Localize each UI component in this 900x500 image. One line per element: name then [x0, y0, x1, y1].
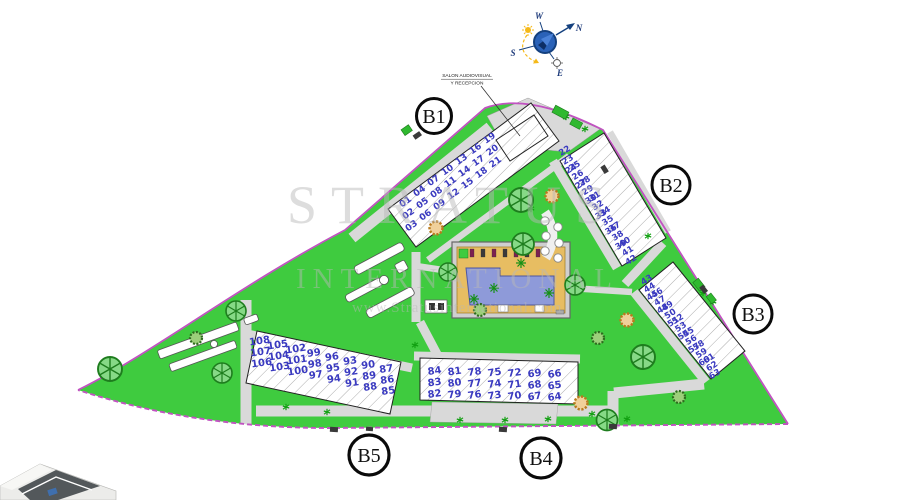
gate-marker	[330, 427, 338, 433]
bush-icon	[592, 332, 604, 344]
compass-label-west: W	[535, 11, 544, 21]
planter	[459, 249, 468, 258]
bush-icon	[430, 222, 443, 235]
utility-box	[425, 300, 447, 313]
unit-number: 64	[547, 391, 562, 404]
seating-pod	[542, 232, 550, 240]
compass-west-tick	[540, 22, 543, 31]
unit-number: 67	[527, 391, 542, 404]
unit-number: 70	[507, 390, 522, 403]
unit-number: 94	[326, 373, 341, 386]
bush-icon	[575, 397, 588, 410]
compass-rose-icon: W N S E	[510, 11, 582, 78]
utility-symbol	[438, 303, 444, 310]
block-label-b3: B3	[741, 304, 764, 326]
pool-gate	[556, 310, 564, 314]
palm-icon	[489, 283, 499, 293]
block-label-b4: B4	[529, 448, 552, 470]
tree-icon	[439, 263, 457, 281]
seating-pod	[541, 217, 549, 225]
gate-marker	[366, 427, 373, 431]
palm-icon	[544, 288, 554, 298]
tree-icon	[226, 301, 246, 321]
unit-number: 73	[487, 390, 502, 403]
seating-pod	[554, 254, 562, 262]
gate-marker	[609, 424, 617, 430]
block-label-b5: B5	[357, 445, 380, 467]
tree-icon	[565, 275, 585, 295]
site-plan: 0102030405060708091011121314151617181920…	[0, 0, 900, 500]
unit-number: 79	[447, 389, 462, 402]
unit-number: 82	[427, 388, 442, 401]
block-label-b1: B1	[422, 106, 445, 128]
seating-pod	[555, 239, 563, 247]
sunset-sun-icon	[554, 60, 561, 67]
unit-number: 85	[381, 385, 396, 398]
palm-icon	[516, 258, 526, 268]
bush-icon	[546, 190, 559, 203]
unit-number: 76	[467, 389, 482, 402]
bush-icon	[190, 332, 202, 344]
b4-service-apron	[430, 402, 558, 424]
bush-icon	[621, 314, 634, 327]
tree-icon	[98, 357, 122, 381]
garden-feature	[211, 341, 218, 348]
compass-east-tick	[549, 52, 554, 59]
tree-icon	[212, 363, 232, 383]
unit-number: 97	[308, 369, 323, 382]
unit-number: 88	[363, 381, 378, 394]
bush-icon	[673, 391, 685, 403]
callout-line1: SALON AUDIOVISUAL	[442, 73, 492, 79]
pool-steps	[535, 305, 544, 312]
unit-number: 91	[344, 377, 359, 390]
utility-symbol	[429, 303, 435, 310]
block-label-b2: B2	[659, 175, 682, 197]
tree-icon	[631, 345, 655, 369]
gate-marker	[413, 131, 422, 140]
compass-label-north: N	[575, 23, 583, 33]
compass-label-east: E	[556, 68, 563, 78]
seating-pod	[554, 223, 562, 231]
building-photo-corner	[0, 464, 116, 500]
play-equipment	[380, 276, 389, 285]
pool-steps	[498, 305, 508, 312]
compass-south-tick	[519, 46, 534, 50]
sun-icon	[525, 27, 531, 33]
gate-marker	[499, 427, 507, 433]
site-plan-drawing: 0102030405060708091011121314151617181920…	[0, 0, 900, 500]
palm-icon	[469, 294, 479, 304]
bush-icon	[474, 304, 486, 316]
callout-line2: Y RECEPCION	[451, 81, 485, 87]
hedge	[401, 125, 412, 136]
seating-pod	[541, 247, 549, 255]
tree-icon	[512, 233, 534, 255]
compass-label-south: S	[510, 48, 515, 58]
